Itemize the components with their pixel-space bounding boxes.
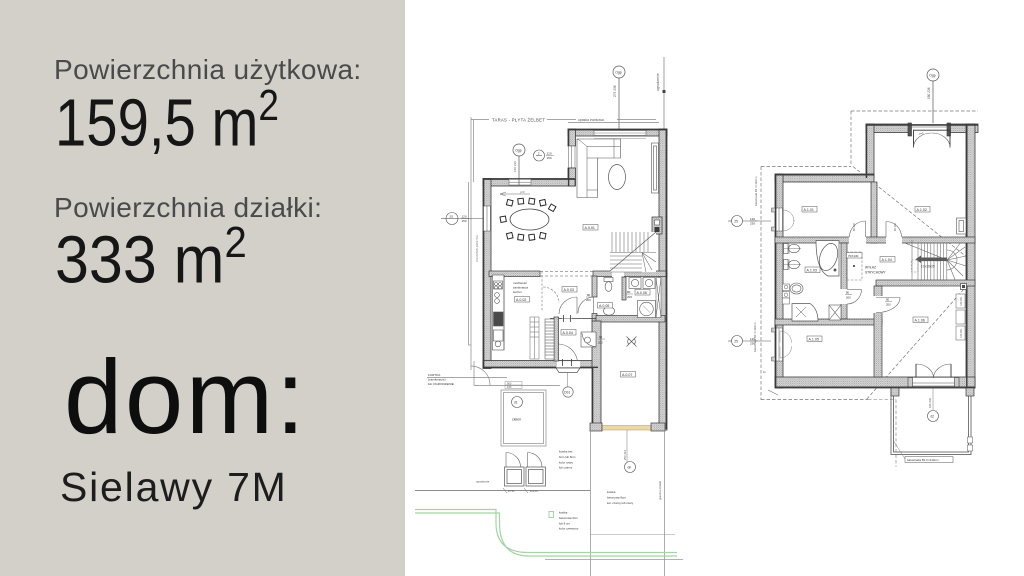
svg-text:150: 150 <box>462 219 467 223</box>
svg-text:80: 80 <box>886 298 890 302</box>
svg-text:balustrada B1 h=110cm: balustrada B1 h=110cm <box>907 458 939 462</box>
svg-text:Ogp: Ogp <box>929 74 936 78</box>
svg-text:25: 25 <box>734 219 738 223</box>
svg-text:A.1.04: A.1.04 <box>882 258 892 262</box>
svg-text:120: 120 <box>547 152 552 156</box>
svg-text:120: 120 <box>462 215 467 219</box>
svg-text:80: 80 <box>846 291 850 295</box>
svg-text:TARAS - PŁYTA ŻELBET: TARAS - PŁYTA ŻELBET <box>492 118 545 123</box>
svg-text:CHODNIK-KOSTKA: CHODNIK-KOSTKA <box>475 235 479 262</box>
svg-text:FURTKA: FURTKA <box>428 373 441 377</box>
svg-text:Ogp: Ogp <box>515 149 522 153</box>
svg-text:A.0.04: A.0.04 <box>563 331 573 335</box>
svg-text:d2: d2 <box>931 415 935 419</box>
svg-text:A.0.02: A.0.02 <box>516 298 526 302</box>
svg-text:balustrada B4 h=110cm: balustrada B4 h=110cm <box>754 176 758 206</box>
svg-text:A.0.03: A.0.03 <box>564 288 574 292</box>
svg-text:ogrodzenie: ogrodzenie <box>656 73 660 91</box>
svg-text:A.1.01: A.1.01 <box>804 208 814 212</box>
svg-text:200: 200 <box>886 303 891 307</box>
svg-text:200: 200 <box>846 296 851 300</box>
svg-text:WYŁAZ: WYŁAZ <box>865 266 876 270</box>
svg-text:zieleń: zieleń <box>512 418 521 422</box>
svg-text:d1: d1 <box>514 401 518 405</box>
svg-text:balustrada B4 h=110cm: balustrada B4 h=110cm <box>753 322 757 352</box>
svg-text:97.95: 97.95 <box>508 489 515 493</box>
svg-text:ogrodzenie: ogrodzenie <box>476 480 490 484</box>
svg-text:zamknięcia: zamknięcia <box>513 285 528 289</box>
svg-text:1k: 1k <box>763 370 766 374</box>
svg-text:200: 200 <box>586 298 591 302</box>
svg-text:120: 120 <box>750 217 755 221</box>
svg-text:kostka bet.: kostka bet. <box>559 450 573 454</box>
svg-text:2S: 2S <box>450 215 454 219</box>
svg-text:lub 8 cm: lub 8 cm <box>559 521 571 525</box>
svg-text:możliwość: możliwość <box>513 281 527 285</box>
svg-text:80 200: 80 200 <box>852 223 856 231</box>
svg-text:A.0.07: A.0.07 <box>622 373 632 377</box>
svg-text:p=0: p=0 <box>520 190 525 194</box>
svg-text:110.16: 110.16 <box>530 489 538 493</box>
svg-text:150: 150 <box>507 385 512 389</box>
svg-text:A.0.05: A.0.05 <box>599 304 609 308</box>
svg-text:70X130: 70X130 <box>848 254 859 258</box>
svg-text:A.1.03: A.1.03 <box>807 268 817 272</box>
svg-text:180 236: 180 236 <box>927 87 931 99</box>
svg-text:granica działki: granica działki <box>658 481 662 500</box>
svg-text:kostka: kostka <box>607 490 616 494</box>
svg-text:kolor szary: kolor szary <box>559 460 574 464</box>
svg-text:betonowa 6cm: betonowa 6cm <box>559 516 578 520</box>
svg-text:25: 25 <box>734 339 738 343</box>
svg-text:80: 80 <box>627 290 631 294</box>
svg-text:lub OGRODZENIE: lub OGRODZENIE <box>428 382 454 386</box>
svg-text:A.1.02: A.1.02 <box>917 208 927 212</box>
svg-text:6cm lub 8cm: 6cm lub 8cm <box>559 455 576 459</box>
svg-text:60: 60 <box>599 335 603 339</box>
svg-text:200: 200 <box>598 341 603 345</box>
svg-text:lub czarny: lub czarny <box>559 466 573 470</box>
svg-text:236: 236 <box>750 222 755 226</box>
svg-text:120 236: 120 236 <box>960 297 963 306</box>
svg-text:180 236: 180 236 <box>928 397 932 408</box>
svg-text:dn: dn <box>628 466 632 470</box>
svg-text:250 212: 250 212 <box>623 449 627 460</box>
svg-text:900: 900 <box>507 382 512 386</box>
svg-text:A.0.01: A.0.01 <box>585 226 595 230</box>
svg-text:120 236: 120 236 <box>960 329 963 338</box>
svg-text:kostka: kostka <box>559 511 568 515</box>
svg-text:opaska żwirkowa: opaska żwirkowa <box>578 118 604 122</box>
svg-text:A.1.06: A.1.06 <box>915 318 925 322</box>
svg-text:Ogp: Ogp <box>615 71 622 75</box>
svg-text:STRYCHOWY: STRYCHOWY <box>865 270 887 274</box>
svg-text:17x19x25: 17x19x25 <box>921 265 935 269</box>
svg-text:200: 200 <box>627 295 632 299</box>
svg-text:Db1: Db1 <box>564 391 570 395</box>
svg-text:kuchni: kuchni <box>513 290 522 294</box>
svg-text:(zamknięcie): (zamknięcie) <box>428 378 446 382</box>
svg-text:betonowa 8cm: betonowa 8cm <box>607 495 626 499</box>
svg-text:150: 150 <box>547 156 552 160</box>
svg-text:80 200: 80 200 <box>893 223 897 231</box>
svg-text:80: 80 <box>587 293 591 297</box>
svg-text:A.0.06: A.0.06 <box>637 291 647 295</box>
svg-text:273 236: 273 236 <box>613 85 617 97</box>
svg-text:kol. czarny lub szary: kol. czarny lub szary <box>607 501 634 505</box>
svg-text:160 236: 160 236 <box>513 161 517 172</box>
svg-text:A.1.05: A.1.05 <box>809 337 819 341</box>
svg-text:kolor czerwony: kolor czerwony <box>559 527 579 531</box>
